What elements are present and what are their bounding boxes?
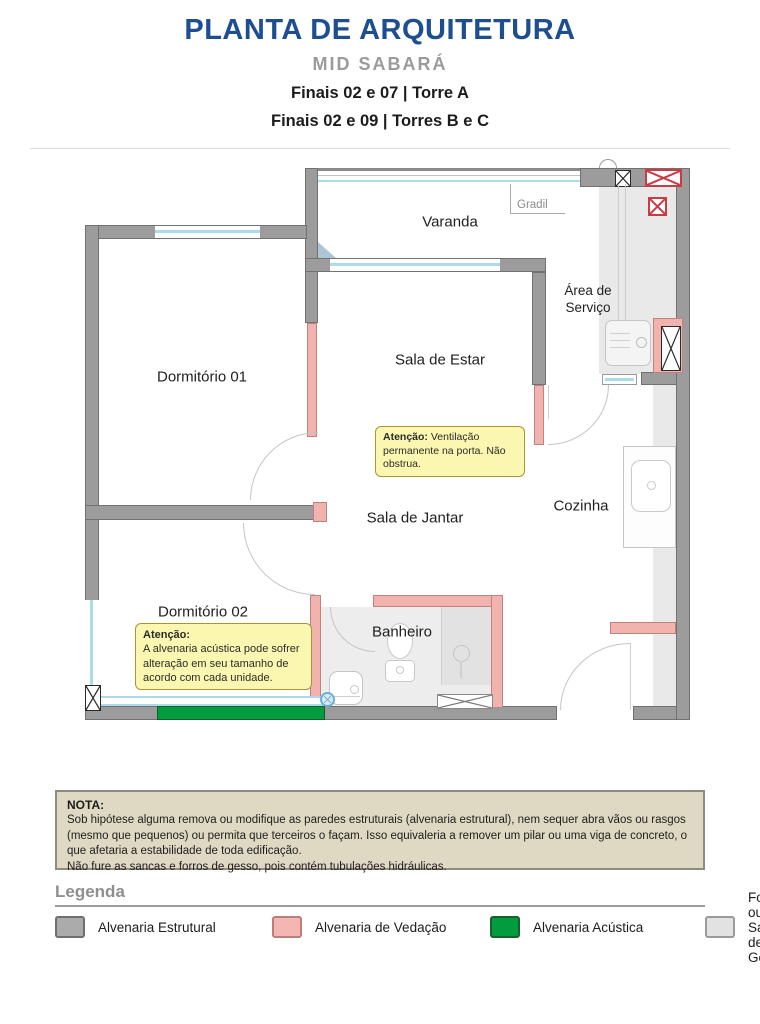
shower-stem <box>460 661 462 678</box>
note-title: Atenção: <box>143 628 304 642</box>
wall-vedacao-entry-stub <box>610 622 676 634</box>
legend: Alvenaria Estrutural Alvenaria de Vedaçã… <box>55 912 705 942</box>
gradil-leader-v <box>510 184 511 213</box>
page-title: PLANTA DE ARQUITETURA <box>0 14 760 47</box>
window-glass <box>155 230 260 233</box>
door-leaf-cozinha <box>548 385 549 419</box>
note-title: Atenção: <box>383 431 428 443</box>
washer-detail <box>610 347 630 348</box>
alvenaria-vedacao-swatch <box>272 916 302 938</box>
wall-right-outer <box>676 168 690 720</box>
legend-divider <box>55 905 705 907</box>
door-arc-dorm2 <box>243 523 315 595</box>
door-arc-dorm1 <box>250 432 318 500</box>
door-arc-entry <box>560 643 630 710</box>
nota-title: NOTA: <box>67 797 693 813</box>
washer-icon <box>605 320 651 366</box>
wall-vedacao-hall-cap <box>313 502 327 522</box>
legend-item: Forro ou Sanca de Gesso <box>705 912 760 942</box>
vazio-icon-banheiro <box>437 694 493 709</box>
nota-paragraph-2: Não fure as sancas e forros de gesso, po… <box>67 861 447 873</box>
window-kitchen-passage <box>602 374 637 385</box>
gradil-rail <box>305 168 595 184</box>
wall-acustica <box>157 706 325 720</box>
legend-heading: Legenda <box>55 882 125 902</box>
window-dorm2-bottom <box>100 696 325 706</box>
door-leaf-entry <box>630 643 631 710</box>
room-label-dormitorio-01: Dormitório 01 <box>157 369 247 386</box>
note-ventilation: Atenção: Ventilação permanente na porta.… <box>375 426 525 477</box>
vent-semicircle-icon <box>599 159 617 168</box>
wall-vedacao-dorm1 <box>307 323 317 437</box>
room-label-area-servico: Área de Serviço <box>556 283 620 317</box>
window-glass <box>90 600 93 685</box>
shaft-icon-servico <box>661 326 681 371</box>
rail-line-mid <box>305 175 595 176</box>
door-arc-cozinha <box>548 385 609 445</box>
window-dorm1 <box>155 226 260 238</box>
toilet-flush <box>396 666 404 674</box>
kitchen-drain <box>647 481 656 490</box>
units-line-1: Finais 02 e 07 | Torre A <box>0 84 760 103</box>
legend-label: Alvenaria Acústica <box>533 920 643 935</box>
window-sala <box>330 259 500 271</box>
shaft-icon-bottom-left <box>85 685 101 711</box>
room-label-cozinha: Cozinha <box>553 498 608 515</box>
units-line-2: Finais 02 e 09 | Torres B e C <box>0 112 760 131</box>
forro-swatch <box>705 916 735 938</box>
bath-sink-drain <box>350 685 359 694</box>
ventilacao-icon-top <box>645 169 682 187</box>
legend-item: Alvenaria Acústica <box>490 912 705 942</box>
window-glass <box>605 378 634 381</box>
exhaust-fan-icon <box>320 692 335 707</box>
legend-label: Alvenaria de Vedação <box>315 920 446 935</box>
rail-line-top <box>305 168 595 171</box>
room-label-banheiro: Banheiro <box>372 624 432 641</box>
note-acoustic: Atenção: A alvenaria acústica pode sofre… <box>135 623 312 690</box>
legend-item: Alvenaria Estrutural <box>55 912 272 942</box>
wall-sala-right <box>532 272 546 385</box>
rail-line-glass <box>305 180 595 182</box>
kitchen-counter <box>623 446 676 548</box>
legend-label: Forro ou Sanca de Gesso <box>748 890 760 965</box>
legend-label: Alvenaria Estrutural <box>98 920 216 935</box>
window-dorm2-left <box>85 600 99 685</box>
gradil-label: Gradil <box>517 199 548 211</box>
washer-detail <box>610 333 630 334</box>
nota-box: NOTA: Sob hipótese alguma remova ou modi… <box>55 790 705 870</box>
window-glass <box>330 263 500 266</box>
note-text: A alvenaria acústica pode sofrer alteraç… <box>143 643 300 684</box>
room-label-varanda: Varanda <box>422 214 478 231</box>
enchimento-triangle <box>318 242 336 258</box>
alvenaria-estrutural-swatch <box>55 916 85 938</box>
wall-vedacao-sala <box>534 385 544 445</box>
wall-varanda-left <box>305 168 318 323</box>
legend-item: Alvenaria de Vedação <box>272 912 490 942</box>
washer-detail <box>610 340 630 341</box>
header: PLANTA DE ARQUITETURA MID SABARÁ Finais … <box>0 14 760 131</box>
nota-paragraph-1: Sob hipótese alguma remova ou modifique … <box>67 814 687 857</box>
room-label-dormitorio-02: Dormitório 02 <box>158 604 248 621</box>
wall-vedacao-banheiro-right <box>491 595 503 708</box>
wall-vedacao-banheiro-top <box>373 595 503 607</box>
gradil-leader-h <box>510 213 565 214</box>
room-label-sala-estar: Sala de Estar <box>395 352 485 369</box>
shower-divider <box>441 607 442 685</box>
header-divider <box>30 148 730 149</box>
floor-plan: Gradil Varanda Área de Serviço Sala de E… <box>85 168 690 724</box>
project-name: MID SABARÁ <box>0 54 760 75</box>
bath-sink-detail <box>334 696 360 697</box>
ventilacao-icon-small <box>648 197 667 216</box>
washer-knob <box>636 337 647 348</box>
shower-head <box>453 645 470 662</box>
room-label-sala-jantar: Sala de Jantar <box>367 510 464 527</box>
wall-hall <box>85 505 315 520</box>
alvenaria-acustica-swatch <box>490 916 520 938</box>
